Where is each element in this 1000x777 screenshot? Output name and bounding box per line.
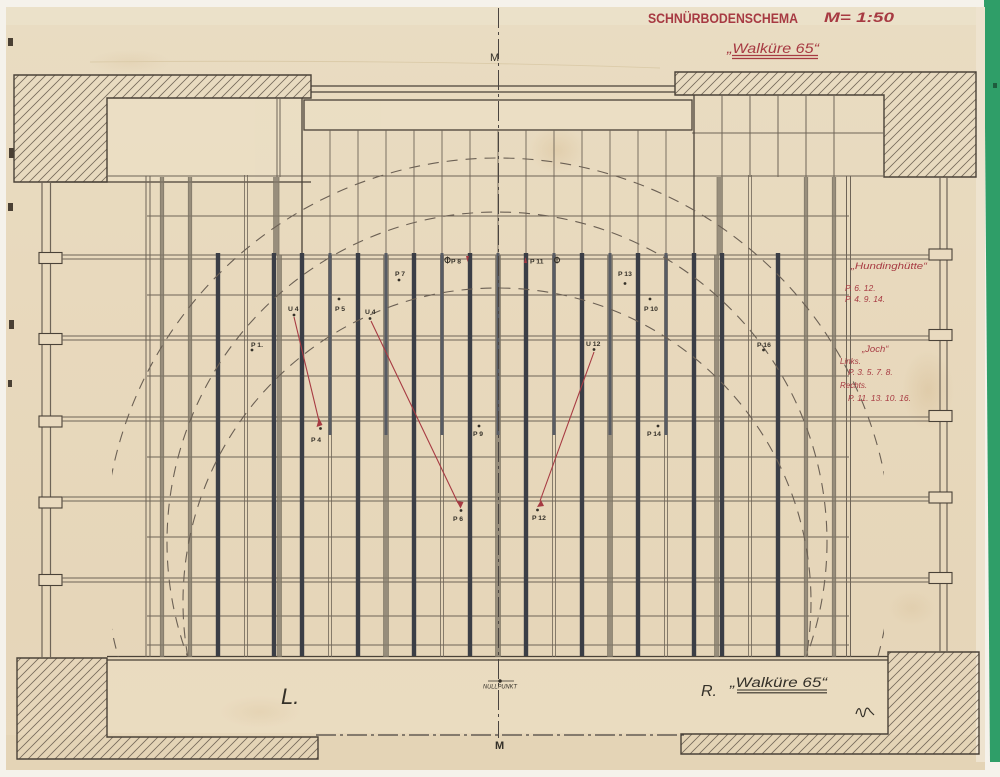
svg-text:P. 6. 12.: P. 6. 12. xyxy=(845,283,876,293)
svg-text:Rechts.: Rechts. xyxy=(840,381,867,390)
svg-text:M: M xyxy=(495,740,504,752)
svg-text:M= 1:50: M= 1:50 xyxy=(824,10,895,25)
svg-text:Links.: Links. xyxy=(840,357,861,366)
svg-text:P 6: P 6 xyxy=(453,516,463,523)
svg-text:L.: L. xyxy=(281,684,299,709)
svg-text:U 4: U 4 xyxy=(288,306,299,313)
svg-text:P 1.: P 1. xyxy=(251,342,263,349)
svg-text:M: M xyxy=(490,52,499,64)
svg-text:P. 4. 9. 14.: P. 4. 9. 14. xyxy=(845,294,885,304)
svg-text:P. 3. 5. 7. 8.: P. 3. 5. 7. 8. xyxy=(848,367,893,377)
svg-text:U 4: U 4 xyxy=(365,309,376,316)
svg-text:„Joch“: „Joch“ xyxy=(861,344,889,355)
svg-text:SCHNÜRBODENSCHEMA: SCHNÜRBODENSCHEMA xyxy=(648,11,798,26)
svg-text:„Walküre 65“: „Walküre 65“ xyxy=(729,675,829,690)
svg-text:R.: R. xyxy=(701,683,717,700)
svg-text:P 13: P 13 xyxy=(618,271,632,278)
svg-text:„Hundinghütte“: „Hundinghütte“ xyxy=(850,261,928,272)
svg-text:P 10: P 10 xyxy=(644,306,658,313)
svg-text:P 11: P 11 xyxy=(530,259,544,266)
svg-text:U 12: U 12 xyxy=(586,341,601,348)
svg-text:P 9: P 9 xyxy=(473,431,483,438)
svg-text:„Walküre 65“: „Walküre 65“ xyxy=(726,40,821,56)
svg-text:P 7: P 7 xyxy=(395,271,405,278)
svg-text:P 16: P 16 xyxy=(757,342,771,349)
svg-text:P 12: P 12 xyxy=(532,515,546,522)
svg-text:P 8: P 8 xyxy=(451,259,461,266)
svg-text:P. 11. 13. 10. 16.: P. 11. 13. 10. 16. xyxy=(848,393,911,403)
svg-text:P 14: P 14 xyxy=(647,431,661,438)
svg-text:P 4: P 4 xyxy=(311,437,321,444)
svg-text:P 5: P 5 xyxy=(335,306,345,313)
svg-text:NULLPUNKT: NULLPUNKT xyxy=(483,685,518,691)
